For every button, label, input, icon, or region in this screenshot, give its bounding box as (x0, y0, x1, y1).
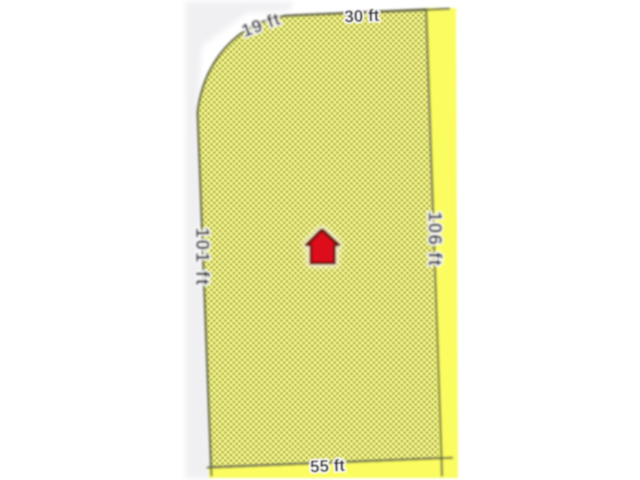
svg-text:101 ft: 101 ft (191, 227, 212, 286)
svg-text:55 ft: 55 ft (310, 456, 346, 476)
svg-text:30 ft: 30 ft (344, 6, 380, 26)
svg-text:106 ft: 106 ft (423, 211, 444, 267)
